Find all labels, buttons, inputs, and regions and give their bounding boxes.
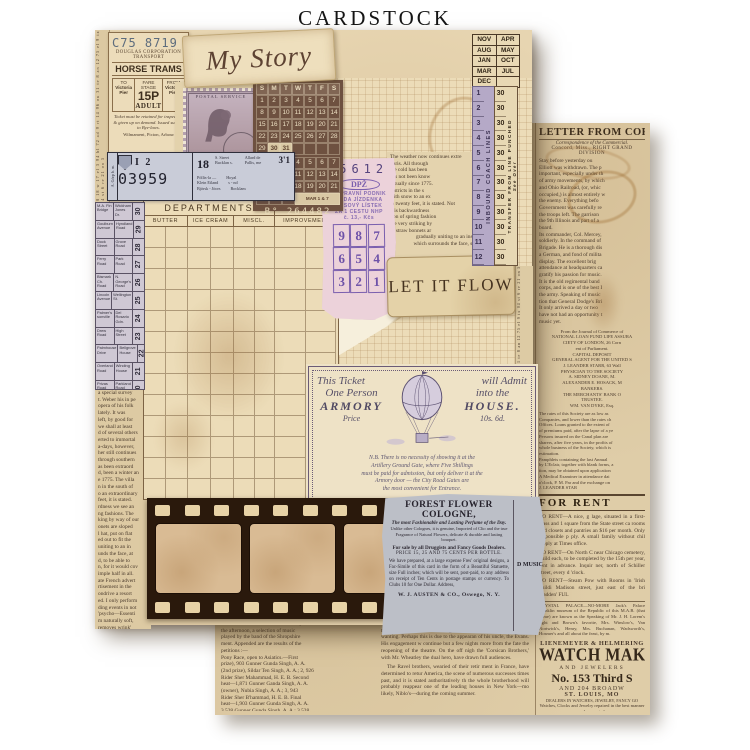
street-row: Dock StreetGrove Road28: [96, 239, 144, 257]
month-pair-card: NOVAPRAUGMAYJANOCTMARJULDEC: [472, 34, 520, 88]
armory-admission-ticket: This Ticket One Person ARMORY Price: [308, 366, 536, 503]
calendar-date: [328, 143, 340, 155]
ticket-logo: DPŽ: [338, 179, 380, 190]
route-name: Bocklam: [231, 186, 246, 191]
calendar-day: S: [256, 83, 268, 95]
grid-number: 9: [333, 224, 351, 247]
street-name: Palmer's sonville: [96, 310, 115, 327]
my-story-text: My Story: [205, 40, 313, 77]
calendar-grid-1: 1234567891011121314151617181920212223242…: [256, 95, 340, 155]
divider: [539, 139, 645, 140]
inbound-coach-strip: 123456789101112 INBOUND COACH LINES: [472, 86, 495, 266]
text-line: e 1775. The villa: [98, 477, 148, 484]
calendar-date: 6: [316, 157, 328, 169]
street-name: Bismark Ch. Road: [96, 274, 114, 291]
cologne-advertisement: FOREST FLOWER COLOGNE, The most Fashiona…: [382, 494, 546, 635]
ledger-cell: [211, 248, 234, 269]
text-line: WM. VAN DYKE, Esq.: [539, 403, 645, 409]
text-line: king by way of our: [98, 517, 148, 524]
sliver-text: 48 18 w 17 el 3 94 bl 72 ad 9 rt 14 96 o…: [95, 30, 105, 204]
street-row: Ferry RoadPark Road27: [96, 256, 144, 274]
text-line: prize), 903 Gunner Gunda Singh, A. A.: [221, 661, 373, 668]
text-line: unds the face, at: [98, 551, 148, 558]
strip-numbers: 303030303030303030303030: [495, 87, 506, 265]
calendar-date: 8: [256, 107, 268, 119]
ad-price-line: PRICE 15, 25 AND 75 CENTS PER BOTTLE.: [389, 551, 509, 556]
route-row: Björsk - JöorsBocklam: [197, 186, 290, 191]
text-line: Rider Sher Mahammad, H. E. B. Second: [221, 675, 373, 682]
route-number: 18: [197, 157, 209, 171]
text-line: ondrive a resort: [98, 591, 148, 598]
ticket-line: 10s. 6d.: [458, 414, 527, 423]
text-line: Paris. All through: [390, 161, 474, 168]
ad-side-column: D MUSICAL.: [513, 500, 539, 631]
ledger-cell: [275, 479, 306, 500]
ledger-cell: [275, 227, 306, 248]
ticket-line: will Admit: [458, 375, 527, 387]
street-name: Drew Road: [96, 328, 115, 345]
sprocket-hole: [273, 505, 288, 516]
calendar-date: 16: [268, 119, 280, 131]
zone-number: 24: [130, 313, 144, 324]
to-place: Pier: [113, 90, 134, 95]
stain: [585, 273, 621, 333]
ledger-cell: [144, 248, 166, 269]
mini-line: Bucklan s.: [215, 160, 233, 165]
sprocket-hole: [244, 602, 259, 613]
see-over-label: See Over: [512, 161, 517, 191]
text-line: Brigade. He is a thorough dis: [539, 245, 645, 252]
ledger-cell: [255, 458, 275, 479]
ledger-cell: [144, 290, 166, 311]
fare-cell: FARE STAGE 15P ADULT: [135, 79, 162, 111]
ticket-line: One Person: [317, 387, 386, 399]
calendar-date: 7: [328, 157, 340, 169]
month-label: MAY: [497, 46, 520, 56]
text-line: 'psycho—Essenti: [98, 611, 148, 618]
sprocket-hole: [185, 505, 200, 516]
ad-body-line: Unlike other Colognes, it is genuine, Im…: [389, 526, 509, 543]
calendar-date: 25: [292, 131, 304, 143]
calendar-date: 26: [304, 131, 316, 143]
text-line: d, been a winter an: [98, 470, 148, 477]
month-row: AUGMAY: [473, 46, 519, 57]
month-label: JAN: [473, 56, 497, 66]
ticket-left-block: A. Görp b. m. I 2 03959: [108, 153, 193, 200]
sprocket-hole: [332, 602, 347, 613]
month-row: MARJUL: [473, 67, 519, 78]
calendar-date: 14: [328, 107, 340, 119]
grid-number: 2: [350, 270, 368, 293]
strip-number: 7: [473, 176, 484, 191]
sprocket-hole: [155, 602, 170, 613]
zone-number: 21: [130, 366, 144, 377]
street-name: Lincoln Avenue: [96, 292, 112, 309]
text-line: lately. It was: [98, 410, 148, 417]
mini-line: Allard de: [245, 155, 261, 160]
street-row: Privas RoadParkland Road20: [96, 381, 144, 390]
calendar-date: 19: [304, 181, 316, 193]
ledger-cell: [275, 290, 306, 311]
mini-line: S. Street: [215, 155, 229, 160]
text-line: tion of spring fashion: [390, 214, 474, 221]
street-row: Palmhouse DriveBellgrove House22: [96, 345, 144, 363]
text-line: The weather now continues extre: [390, 154, 474, 161]
text-line: soldierly. In the command of: [539, 238, 645, 245]
ledger-subheader: BUTTER ICE CREAM MISCL. IMPROVEMENT: [144, 216, 338, 227]
text-line: onets are sloped: [98, 524, 148, 531]
ledger-cell: [144, 332, 166, 353]
ledger-cell: [255, 269, 275, 290]
text-line: a German, and fond of milita: [539, 252, 645, 259]
text-line: (owner), Nubia Singh, A. A.; 3, 943: [221, 688, 373, 695]
street-name: Dock Street: [96, 239, 115, 256]
text-line: ding events in not: [98, 605, 148, 612]
zone-number: 27: [130, 259, 144, 270]
text-line: removes wrink': [98, 625, 148, 629]
strip-number: 5: [473, 146, 484, 161]
text-line: n, for it would cov: [98, 564, 148, 571]
calendar-date: 15: [256, 119, 268, 131]
ledger-cell: [188, 269, 211, 290]
fare-mark: 3'1: [278, 155, 290, 165]
sprocket-hole: [214, 505, 229, 516]
address-line: No. 153 Third S: [539, 671, 645, 686]
calendar-day: W: [292, 83, 304, 95]
sprocket-hole: [303, 602, 318, 613]
ticket-serial: 03959: [118, 170, 190, 188]
ledger-cell: [144, 311, 166, 332]
class-mark: I 2: [135, 157, 152, 168]
calendar-date: 12: [304, 107, 316, 119]
zone-number: 20: [130, 384, 144, 390]
calendar-date: 27: [316, 131, 328, 143]
strip-number: 30: [495, 87, 506, 102]
ledger-cell: [211, 437, 234, 458]
sprocket-hole: [332, 505, 347, 516]
calendar-date: 23: [268, 131, 280, 143]
month-label: AUG: [473, 46, 497, 56]
text-line: opera of his folk: [98, 403, 148, 410]
calendar-row: 22232425262728: [256, 131, 340, 143]
text-line: petitions :—: [221, 648, 373, 655]
watch-maker-headline: WATCH MAKER: [539, 646, 645, 667]
text-line: Rider Sher B'hammad, H. E. B. Final: [221, 695, 373, 702]
mini-line: Pallis, me: [245, 160, 262, 165]
ledger-cell: [275, 248, 306, 269]
strip-label-wrap: TRANSFER FROM LINE PUNCHED See Over: [506, 87, 517, 265]
sprocket-hole: [273, 602, 288, 613]
text-line: left, by good for: [98, 417, 148, 424]
ledger-cell: [234, 437, 255, 458]
ledger-cell: [234, 227, 255, 248]
calendar-date: 12: [304, 169, 316, 181]
text-line: erted to immortal: [98, 437, 148, 444]
month-row: JANOCT: [473, 56, 519, 67]
strip-number: 30: [495, 161, 506, 176]
let-it-flow-text: LET IT FLOW: [388, 275, 514, 298]
street-name: Ferry Road: [96, 256, 115, 273]
calendar-date: 21: [328, 181, 340, 193]
ledger-cell: [144, 353, 166, 374]
calendar-date: 18: [292, 119, 304, 131]
stamp-inscription: POSTAL SERVICE: [189, 94, 253, 99]
calendar-date: 6: [316, 95, 328, 107]
street-name: Privas Road: [96, 381, 115, 390]
calendar-date: 22: [256, 131, 268, 143]
ledger-cell: [211, 458, 234, 479]
street-row: Overland RoadWinding House21: [96, 363, 144, 381]
ticket-line: Price: [317, 414, 386, 423]
grid-number: 6: [333, 247, 351, 270]
adjacent-headline: D MUSICAL.: [517, 562, 539, 568]
grid-number: 1: [367, 270, 385, 293]
calendar-date: 21: [328, 119, 340, 131]
sprocket-hole: [214, 602, 229, 613]
paragraph: The Ravel brothers, wearied of their ret…: [381, 664, 529, 698]
text-line: ed out to fit the: [98, 537, 148, 544]
ad-paragraph: We have prepared, at a large expense Fre…: [389, 559, 509, 590]
zone-number: 22: [133, 350, 144, 358]
text-line: n in the south of: [98, 484, 148, 491]
text-line: board.: [539, 225, 645, 232]
text-line: uniting to an in: [98, 544, 148, 551]
ledger-cell: [275, 416, 306, 437]
ledger-cell: [166, 248, 188, 269]
ledger-cell: [144, 479, 166, 500]
sprocket-hole: [303, 505, 318, 516]
strip-number: 30: [495, 191, 506, 206]
text-line: attendance at headquarters ca: [539, 265, 645, 272]
strip-number: 8: [473, 191, 484, 206]
repair-line: Watches, Clocks and Jewelry repaired in …: [539, 703, 645, 711]
strip-number: 30: [495, 146, 506, 161]
classified-ad: TO RENT—On North C near Chicago cemetery…: [539, 550, 645, 577]
calendar-day: T: [304, 83, 316, 95]
calendar-date: 5: [304, 95, 316, 107]
text-line: 3,528 Gunner Gunda Singh, A. A.; 3,528: [221, 708, 373, 711]
strip-number: 11: [473, 235, 484, 250]
calendar-date: 5: [304, 157, 316, 169]
text-line: districts in the s: [390, 188, 474, 195]
street-name: Overland Road: [96, 363, 115, 380]
sprocket-hole: [185, 602, 200, 613]
calendar-row: 15161718192021: [256, 119, 340, 131]
ledger-cell: [211, 269, 234, 290]
product-image: CARDSTOCK nearly all of the towns along …: [0, 0, 750, 750]
ledger-cell: [166, 269, 188, 290]
ledger-cell: [255, 416, 275, 437]
ticket-title: HORSE TRAMS: [112, 62, 185, 76]
street-name: Palmhouse Drive: [96, 345, 118, 362]
strip-number: 4: [473, 131, 484, 146]
film-frame: [249, 523, 336, 594]
crest-icon: [118, 155, 132, 170]
calendar-date: 24: [280, 131, 292, 143]
ledger-cell: [275, 395, 306, 416]
ledger-cell: [211, 227, 234, 248]
strip-number: 10: [473, 220, 484, 235]
text-line: imple half in all.: [98, 571, 148, 578]
zone-number: 25: [130, 295, 144, 306]
calendar-date: 20: [316, 181, 328, 193]
ledger-cell: [166, 227, 188, 248]
ledger-cell: [255, 248, 275, 269]
column-label: BUTTER: [144, 216, 188, 226]
ledger-cell: [275, 311, 306, 332]
ledger-cell: [234, 479, 255, 500]
graph-paper-folded: [318, 310, 532, 372]
column-label: ICE CREAM: [188, 216, 234, 226]
text-line: the very striking by: [390, 221, 474, 228]
ledger-cell: [275, 458, 306, 479]
ledger-cell: [144, 269, 166, 290]
calendar-date: 2: [268, 95, 280, 107]
street-row: Palmer's sonvilleDel Rosario Gdn.24: [96, 310, 144, 328]
front-sheet: 48 18 w 17 el 3 94 bl 72 ad 9 rt 14 96 o…: [95, 30, 532, 625]
text-line: a-days, however,: [98, 444, 148, 451]
strip-number: 30: [495, 250, 506, 265]
grid-number: 7: [367, 224, 385, 247]
edge-text: A. Görp b. m.: [110, 165, 115, 187]
stain: [154, 401, 214, 471]
calendar-date: 28: [328, 131, 340, 143]
text-line: rdness we see an: [98, 504, 148, 511]
street-row: Bismark Ch. RoadN. George's Road26: [96, 274, 144, 292]
ledger-cell: [211, 479, 234, 500]
fare-class: ADULT: [135, 102, 161, 110]
text-line: ate French advert: [98, 578, 148, 585]
text-line: ment. Appended are the results of the: [221, 641, 373, 648]
calendar-date: 11: [292, 107, 304, 119]
strip-number: 2: [473, 102, 484, 117]
ledger-cell: [144, 374, 166, 395]
hot-air-balloon-icon: [386, 371, 458, 455]
calendar-day-header: SMTWTFS: [256, 83, 340, 95]
inbound-label: INBOUND COACH LINES: [486, 129, 492, 224]
street-row: M.A. Fin BridgeWickham Jones Dr.30: [96, 203, 144, 221]
number-grid: 987654321: [333, 224, 385, 293]
zone-number: 26: [130, 277, 144, 288]
vertical-text: A. Görp b. m.: [108, 153, 118, 200]
ledger-cell: [306, 332, 336, 353]
grid-number: 5: [350, 247, 368, 270]
blue-transit-ticket: A. Görp b. m. I 2 03959 18 S. Street Buc…: [107, 152, 295, 201]
headline: LETTER FROM COR: [539, 127, 645, 138]
operator-line: TRANSPORT: [112, 55, 185, 60]
route-rows: Pöllis-la —HoyalKlein Eilands - ndBjörsk…: [197, 175, 290, 191]
ledger-cell: [255, 479, 275, 500]
text-line: feet, it is stated.: [98, 497, 148, 504]
text-line: ed. I only perform: [98, 598, 148, 605]
calendar-note: MAR 1 & 7: [295, 193, 340, 205]
text-line: through southern: [98, 457, 148, 464]
calendar-date: 4: [292, 95, 304, 107]
text-line: m naturally soft,: [98, 618, 148, 625]
mini-text: Allard de Pallis, me: [245, 155, 262, 166]
text-line: a special survey: [98, 390, 148, 397]
strip-number: 1: [473, 87, 484, 102]
street-transfer-table: M.A. Fin BridgeWickham Jones Dr.30Goulbu…: [95, 202, 145, 390]
text-line: as been extraord: [98, 464, 148, 471]
calendar-row: 891011121314: [256, 107, 340, 119]
strip-number: 30: [495, 102, 506, 117]
text-line: in twenty feet, it is stated. Not: [390, 201, 474, 208]
ticket-line: into the: [458, 387, 527, 399]
sprocket-hole: [244, 505, 259, 516]
street-row: Lincoln AvenueWellington St.25: [96, 292, 144, 310]
street-name: Goulburn Avenue: [96, 221, 115, 238]
zone-number: 23: [130, 330, 144, 341]
calendar-day: S: [328, 83, 340, 95]
my-story-label: My Story: [182, 28, 337, 88]
street-row: Drew RoadHigh Street23: [96, 328, 144, 346]
ledger-cell: [275, 269, 306, 290]
month-label: APR: [497, 35, 520, 45]
text-line: rtisement in the: [98, 584, 148, 591]
for-rent-header: FOR RENT: [539, 494, 645, 511]
strip-number: 3: [473, 117, 484, 132]
page-title: CARDSTOCK: [0, 6, 750, 31]
zone-number: 30: [130, 206, 144, 217]
transfer-label: TRANSFER FROM LINE PUNCHED: [507, 119, 512, 234]
calendar-day: M: [268, 83, 280, 95]
newspaper-column-artillery: will have to meet the Asiatic Artillery.…: [221, 621, 373, 711]
text-line: has not been know: [390, 174, 474, 181]
transfer-strip: 303030303030303030303030 TRANSFER FROM L…: [494, 86, 518, 266]
ad-signature: W. J. AUSTEN & CO., Oswego, N. Y.: [389, 592, 509, 598]
ledger-cell: [144, 227, 166, 248]
text-line: her still continues: [98, 450, 148, 457]
text-line: (2nd prize), Sildar Ten Singh, A. A.; 2,…: [221, 668, 373, 675]
calendar-date: 13: [316, 107, 328, 119]
calendar-row: 1234567: [256, 95, 340, 107]
text-line: heat—1,903 Gunner Gunda Singh, A. A.: [221, 701, 373, 708]
text-line: with snow to an ex: [390, 194, 474, 201]
text-line: d of several others: [98, 430, 148, 437]
calendar-date: 9: [268, 107, 280, 119]
classified-ad: TO RENT—Steam Pow with Rooms in 'Irish b…: [539, 578, 645, 598]
notice-block: From the Journal of Commerce ofNATIONAL …: [539, 329, 645, 409]
strip-number: 30: [495, 206, 506, 221]
ledger-cell: [255, 437, 275, 458]
ledger-cell: [166, 290, 188, 311]
calendar-date: 1: [256, 95, 268, 107]
calendar-date: 17: [280, 119, 292, 131]
sprocket-hole: [362, 505, 377, 516]
month-label: JUL: [497, 67, 520, 77]
strip-number: 30: [495, 117, 506, 132]
ledger-cell: [188, 479, 211, 500]
calendar-date: 14: [328, 169, 340, 181]
ledger-cell: [275, 437, 306, 458]
ledger-cell: [188, 248, 211, 269]
strip-number: 6: [473, 161, 484, 176]
grid-number: 8: [350, 224, 368, 247]
sprocket-hole: [155, 505, 170, 516]
calendar-date: 3: [280, 95, 292, 107]
divider: [539, 601, 645, 602]
text-line: J. LEANDER STAR: [539, 485, 645, 491]
ticket-serial: C75 8719: [112, 36, 185, 50]
ad-main-column: FOREST FLOWER COLOGNE, The most Fashiona…: [389, 500, 509, 631]
calendar-date: 20: [316, 119, 328, 131]
zone-number: 28: [130, 241, 144, 252]
calendar-day: F: [316, 83, 328, 95]
strip-number: 9: [473, 206, 484, 221]
text-line: actually since 1775.: [390, 181, 474, 188]
calendar-date: [316, 143, 328, 155]
